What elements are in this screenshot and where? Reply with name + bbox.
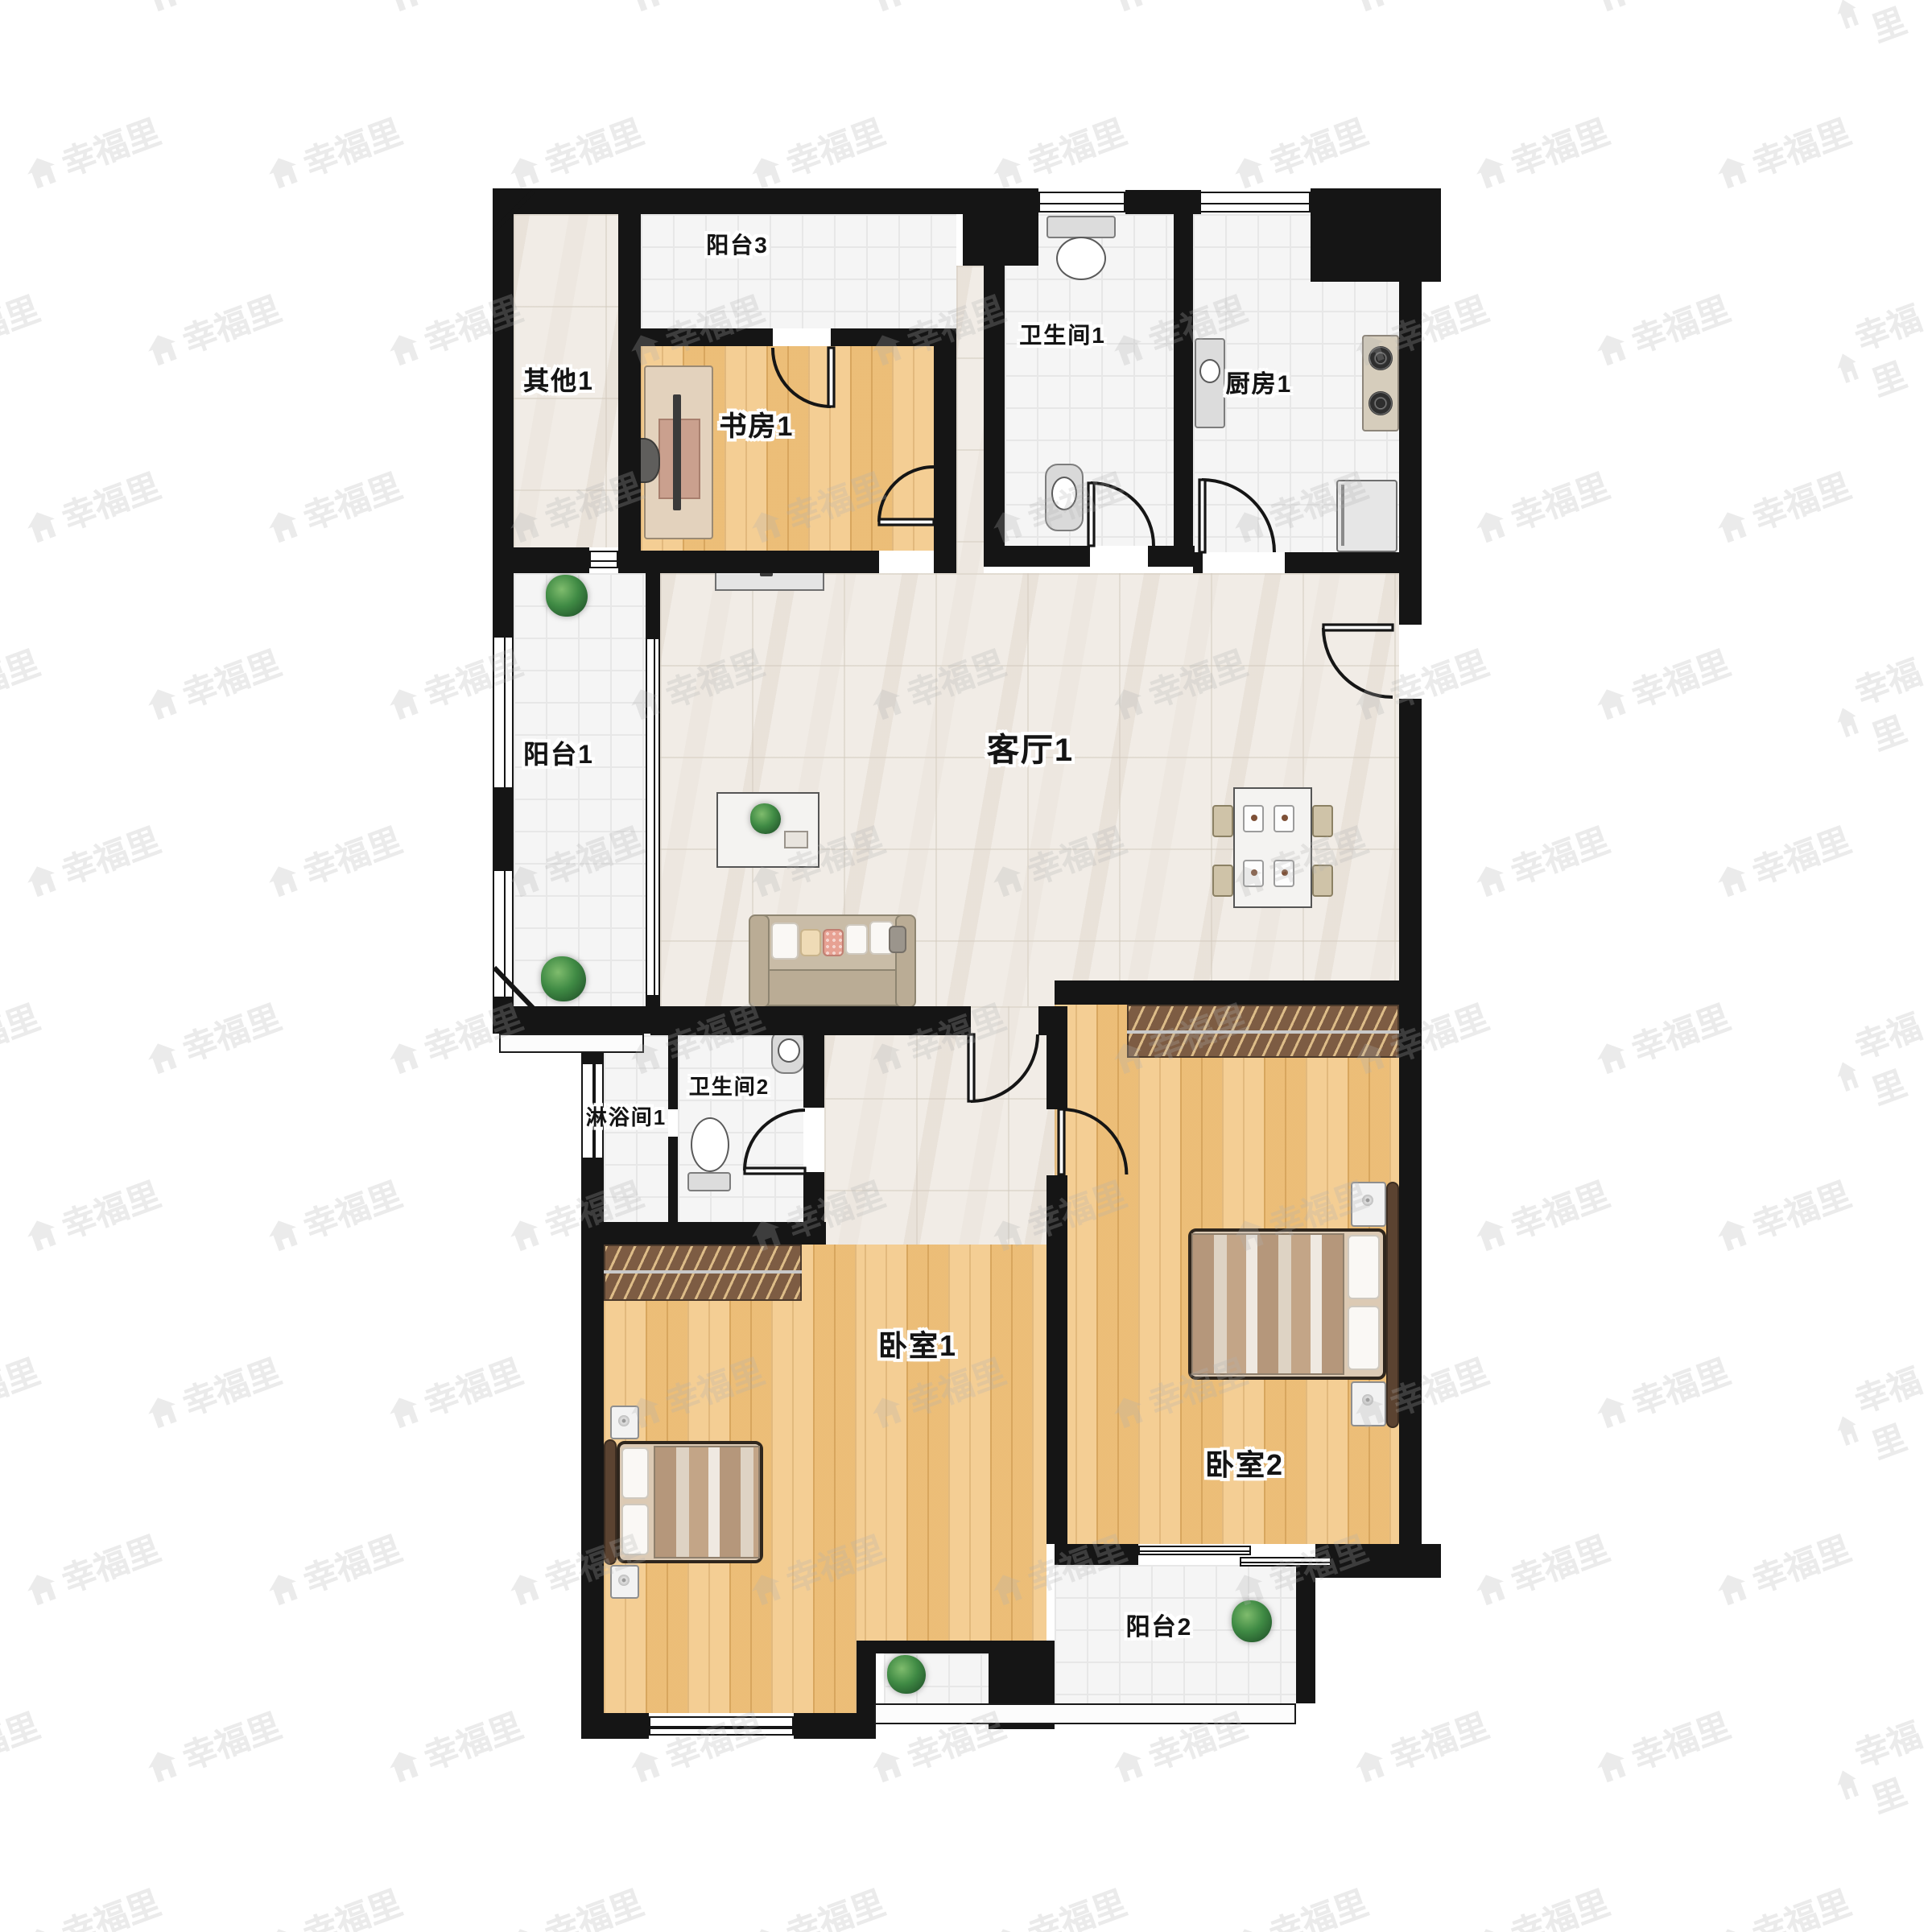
door-study-living-arc <box>879 467 934 522</box>
label-keting1: 客厅1 <box>987 724 1074 770</box>
floor-plan: 阳台3其他1书房1卫生间1厨房1阳台1客厅1淋浴间1卫生间2卧室1卧室2阳台2幸… <box>0 0 1932 1932</box>
label-yangtai1: 阳台1 <box>523 733 594 771</box>
door-study-balcony-arc <box>773 348 831 407</box>
door-bath2-arc <box>745 1110 805 1170</box>
label-woshi1: 卧室1 <box>878 1323 957 1365</box>
label-linyujian1: 淋浴间1 <box>586 1100 667 1131</box>
door-bed2-arc <box>1061 1109 1126 1174</box>
door-corridor-leaf <box>968 1034 974 1101</box>
doors-layer <box>0 0 1932 1932</box>
label-chufang1: 厨房1 <box>1226 366 1293 400</box>
door-bed2-leaf <box>1059 1109 1064 1174</box>
label-qita1: 其他1 <box>523 359 594 398</box>
door-kitchen-leaf <box>1199 480 1205 552</box>
label-yangtai3: 阳台3 <box>706 229 769 261</box>
door-entry-arc <box>1323 628 1393 697</box>
chamfer-top-left <box>494 192 533 230</box>
door-bath1-leaf <box>1088 483 1094 546</box>
label-weishengjian1: 卫生间1 <box>1019 319 1106 351</box>
floor-plan-page: 阳台3其他1书房1卫生间1厨房1阳台1客厅1淋浴间1卫生间2卧室1卧室2阳台2幸… <box>0 0 1932 1932</box>
door-kitchen-arc <box>1202 480 1274 552</box>
door-bath2-leaf <box>745 1168 805 1174</box>
label-woshi2: 卧室2 <box>1205 1443 1284 1484</box>
door-study-living-leaf <box>879 519 934 525</box>
chamfer-bottom-left <box>494 968 533 1008</box>
label-yangtai2: 阳台2 <box>1126 1609 1193 1643</box>
label-shufang1: 书房1 <box>720 403 795 444</box>
door-study-balcony-leaf <box>828 348 834 407</box>
door-corridor-arc <box>971 1034 1038 1101</box>
door-entry-leaf <box>1323 625 1393 630</box>
label-weishengjian2: 卫生间2 <box>689 1070 770 1100</box>
door-bath1-arc <box>1091 483 1154 546</box>
